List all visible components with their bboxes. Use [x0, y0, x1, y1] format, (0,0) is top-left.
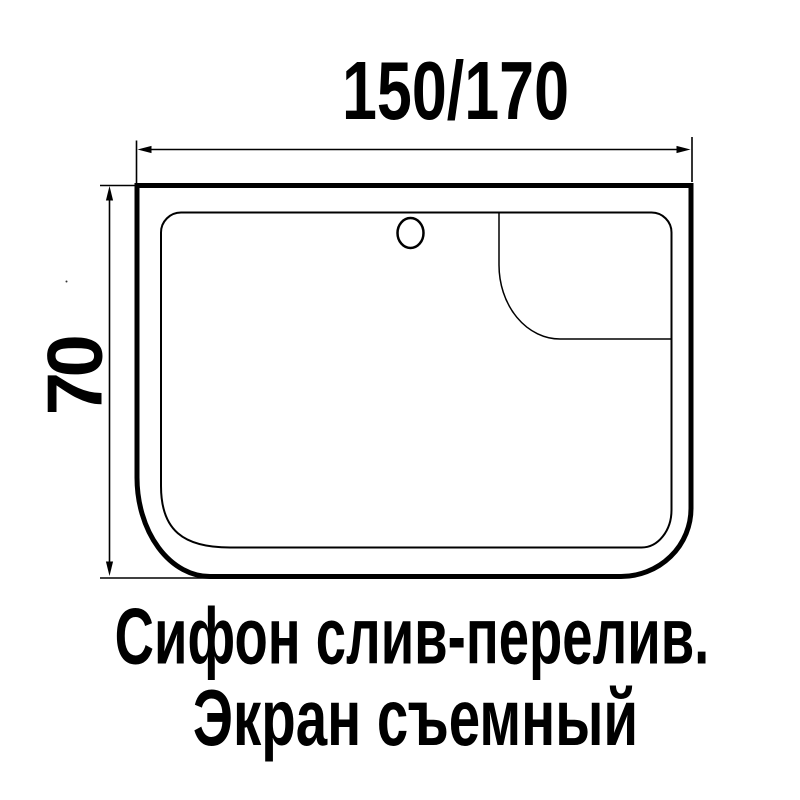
svg-text:Сифон слив-перелив.: Сифон слив-перелив.: [115, 591, 710, 681]
svg-text:Экран съемный: Экран съемный: [193, 672, 638, 762]
svg-text:70: 70: [31, 337, 119, 416]
svg-text:150/170: 150/170: [342, 43, 569, 137]
